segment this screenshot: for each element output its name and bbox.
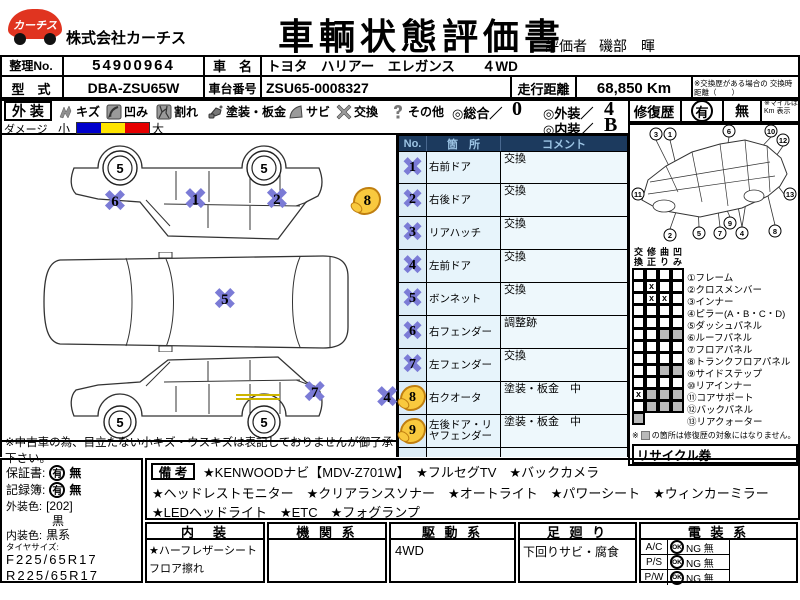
- suspension-box: 足 廻 り 下回りサビ・腐食: [518, 522, 637, 583]
- replace-x-icon: [336, 104, 352, 120]
- svg-text:5: 5: [116, 415, 123, 430]
- damage-seg-large: [125, 123, 149, 133]
- grid-col-dent: 凹み: [671, 247, 684, 267]
- ok-circled: OK: [670, 540, 684, 554]
- diagram-note: ※中古車の為、目立たない小キズ・ウスキズは表記しておりませんが御了承下さい。: [0, 440, 398, 457]
- x-mark-icon: ✖5: [400, 286, 426, 312]
- legend-scratch: キズ: [58, 103, 100, 120]
- mileage-label: 走行距離: [512, 77, 577, 99]
- part-row-3: ✖3 リアハッチ 交換: [398, 217, 628, 250]
- svg-text:5: 5: [260, 161, 267, 176]
- grid-col-repair: 修正: [645, 247, 658, 267]
- parts-table-header: No. 箇 所 コメント: [398, 135, 628, 151]
- electrical-title: 電 装 系: [641, 524, 796, 540]
- model-label: 型 式: [0, 77, 64, 99]
- col-comment: コメント: [501, 136, 627, 151]
- legend-replace: 交換: [336, 103, 378, 120]
- evaluator-label: 評価者: [545, 36, 587, 56]
- warranty-yes-circled: 有: [49, 465, 65, 481]
- record-book-row: 記録簿: 有 無: [6, 481, 81, 498]
- electrical-rows: A/C OK NG 無 P/S OK NG 無 P/W OK NG 無: [641, 540, 730, 583]
- repair-history-yes-circled: 有: [691, 100, 713, 122]
- marker-right-fender: ✖6: [101, 188, 129, 216]
- question-icon: [390, 104, 406, 120]
- interior-box: 内 装 ★ハーフレザーシート フロア擦れ: [145, 522, 265, 583]
- paint-mark-icon: ✖8: [400, 385, 426, 411]
- repair-history-note: ※マイルは Km 表示: [764, 100, 799, 116]
- page-title: 車輌状態評価書: [278, 8, 565, 60]
- part-row-7: ✖7 左フェンダー 交換: [398, 349, 628, 382]
- part-row-9: ✖9 左後ドア・リヤフェンダー 塗装・板金 中: [398, 415, 628, 448]
- x-mark-icon: ✖4: [400, 253, 426, 279]
- engine-content: [269, 540, 385, 544]
- drivetrain-content: 4WD: [391, 540, 514, 561]
- car-top-view: [28, 252, 373, 352]
- warranty-row: 保証書: 有 無: [6, 464, 81, 481]
- interior-title: 内 装: [147, 524, 263, 540]
- part-row-2: ✖2 右後ドア 交換: [398, 184, 628, 217]
- x-mark-icon: ✖2: [400, 187, 426, 213]
- legend-other: その他: [390, 103, 444, 120]
- marker-right-front-door: ✖1: [181, 186, 209, 214]
- drivetrain-title: 駆 動 系: [391, 524, 514, 540]
- rust-icon: [288, 104, 304, 120]
- x-mark-icon: ✖3: [400, 220, 426, 246]
- grid-col-replace: 交換: [632, 247, 645, 267]
- suspension-content: 下回りサビ・腐食: [520, 540, 635, 563]
- chassis-value: ZSU65-0008327: [262, 77, 512, 99]
- wheel-right-front: 5: [103, 151, 137, 185]
- frame-part-13: ⑬リアクォーター: [687, 414, 763, 428]
- mileage-note: ※交換歴がある場合の 交換時距離（ ）: [693, 77, 798, 99]
- svg-text:1: 1: [668, 130, 672, 139]
- svg-text:13: 13: [786, 190, 794, 199]
- svg-text:8: 8: [773, 227, 777, 236]
- car-name-value: トヨタ ハリアー エレガンス ４WD: [262, 55, 798, 77]
- ref-no-value: 54900964: [64, 55, 205, 77]
- paint-extent-line: [236, 394, 280, 400]
- score-overall-value: 0: [512, 98, 522, 121]
- electrical-row-pw: P/W OK NG 無: [641, 570, 729, 585]
- repair-history-label: 修復歴: [630, 101, 678, 121]
- score-interior-value: B: [604, 114, 617, 137]
- marker-right-rear-door: ✖2: [263, 186, 291, 214]
- car-name-label: 車 名: [205, 55, 262, 77]
- svg-text:12: 12: [779, 136, 787, 145]
- part-row-6: ✖6 右フェンダー 調整跡: [398, 316, 628, 349]
- score-overall-label: ◎総合／: [452, 103, 502, 122]
- remarks-line-2: ★ヘッドレストモニター ★クリアランスソナー ★オートライト ★パワーシート ★…: [152, 483, 769, 502]
- electrical-row-ac: A/C OK NG 無: [641, 540, 729, 555]
- x-mark-icon: ✖1: [400, 155, 426, 181]
- remarks-label: 備 考: [151, 463, 195, 480]
- svg-text:7: 7: [718, 229, 722, 238]
- crack-icon: [156, 104, 172, 120]
- suspension-title: 足 廻 り: [520, 524, 635, 540]
- electrical-box: 電 装 系 A/C OK NG 無 P/S OK NG 無 P/W OK NG …: [639, 522, 798, 583]
- bottom-left-box: 保証書: 有 無 記録簿: 有 無 外装色: [202] 黒 内装色: 黒系 タ…: [0, 458, 143, 583]
- ok-circled: OK: [670, 555, 684, 569]
- svg-text:11: 11: [634, 190, 642, 199]
- part-row-empty: [398, 448, 628, 457]
- svg-text:9: 9: [728, 219, 732, 228]
- mileage-value: 68,850 Km: [577, 77, 693, 99]
- frame-diagram: 3 1 6 10 12 11 2 5 7 9 4 8 13: [630, 124, 798, 246]
- svg-text:5: 5: [697, 229, 701, 238]
- part-row-1: ✖1 右前ドア 交換: [398, 151, 628, 184]
- scratch-icon: [58, 104, 74, 120]
- legend-dent: 凹み: [106, 103, 148, 120]
- chassis-label: 車台番号: [205, 77, 262, 99]
- logo-text: カーチス: [8, 17, 62, 33]
- marker-bonnet: ✖5: [211, 286, 239, 314]
- svg-text:5: 5: [260, 415, 267, 430]
- exterior-section-label: 外 装: [4, 101, 52, 121]
- model-value: DBA-ZSU65W: [64, 77, 205, 99]
- record-yes-circled: 有: [49, 482, 65, 498]
- vehicle-evaluation-sheet: カーチス 株式会社カーチス 車輌状態評価書 評価者 磯部 暉 整理No. 549…: [0, 0, 800, 600]
- ref-no-label: 整理No.: [0, 55, 64, 77]
- tire-front-value: F225/65R17: [6, 552, 98, 567]
- company-name: 株式会社カーチス: [66, 27, 186, 48]
- evaluator: 評価者 磯部 暉: [545, 36, 655, 56]
- drivetrain-box: 駆 動 系 4WD: [389, 522, 516, 583]
- legend-crack: 割れ: [156, 103, 198, 120]
- remarks-line-3: ★LEDヘッドライト ★ETC ★フォグランプ: [152, 502, 420, 521]
- x-mark-icon: ✖7: [400, 352, 426, 378]
- svg-text:10: 10: [767, 127, 775, 136]
- svg-text:3: 3: [654, 130, 658, 139]
- svg-text:6: 6: [727, 127, 731, 136]
- ok-circled: OK: [670, 571, 684, 585]
- col-no: No.: [399, 136, 427, 151]
- svg-text:5: 5: [116, 161, 123, 176]
- grid-col-bend: 曲り: [658, 247, 671, 267]
- part-row-8: ✖8 右クオータ 塗装・板金 中: [398, 382, 628, 415]
- remarks-row-1: 備 考 ★KENWOODナビ【MDV-Z701W】 ★フルセグTV ★バックカメ…: [151, 462, 599, 481]
- repair-history-yes: 有: [680, 99, 722, 123]
- part-row-5: ✖5 ボンネット 交換: [398, 283, 628, 316]
- interior-line-1: ★ハーフレザーシート: [147, 540, 263, 558]
- damage-seg-mid: [101, 123, 125, 133]
- damage-scale-bar: [76, 122, 150, 134]
- part-row-4: ✖4 左前ドア 交換: [398, 250, 628, 283]
- legend-rust: サビ: [288, 103, 330, 120]
- x-mark-icon: ✖6: [400, 319, 426, 345]
- paint-spray-icon: [208, 104, 224, 120]
- damage-seg-small: [77, 123, 101, 133]
- electrical-row-ps: P/S OK NG 無: [641, 555, 729, 570]
- paint-mark-icon: ✖9: [400, 418, 426, 444]
- marker-left-front-door: ✖4: [373, 384, 401, 412]
- dent-icon: [106, 104, 122, 120]
- remarks-box: 備 考 ★KENWOODナビ【MDV-Z701W】 ★フルセグTV ★バックカメ…: [145, 458, 800, 520]
- marker-right-quarter: ✖8: [353, 187, 381, 215]
- col-part: 箇 所: [427, 136, 501, 151]
- legend-paint: 塗装・板金: [208, 103, 286, 120]
- curtis-logo: カーチス: [8, 9, 62, 39]
- gray-swatch: [641, 431, 650, 440]
- car-logo-icon: カーチス: [8, 9, 62, 39]
- marker-left-fender: ✖7: [301, 379, 329, 407]
- interior-line-2: フロア擦れ: [147, 558, 263, 576]
- evaluator-name: 磯部 暉: [599, 36, 655, 56]
- repair-history-no: 無: [722, 99, 762, 123]
- engine-box: 機 関 系: [267, 522, 387, 583]
- engine-title: 機 関 系: [269, 524, 385, 540]
- svg-text:2: 2: [668, 231, 672, 240]
- tire-rear-value: R225/65R17: [6, 568, 99, 583]
- remarks-line-1: ★KENWOODナビ【MDV-Z701W】 ★フルセグTV ★バックカメラ: [203, 462, 599, 481]
- wheel-right-rear: 5: [247, 151, 281, 185]
- frame-grid-note: ※ の箇所は修復歴の対象にはなりません。: [632, 430, 795, 441]
